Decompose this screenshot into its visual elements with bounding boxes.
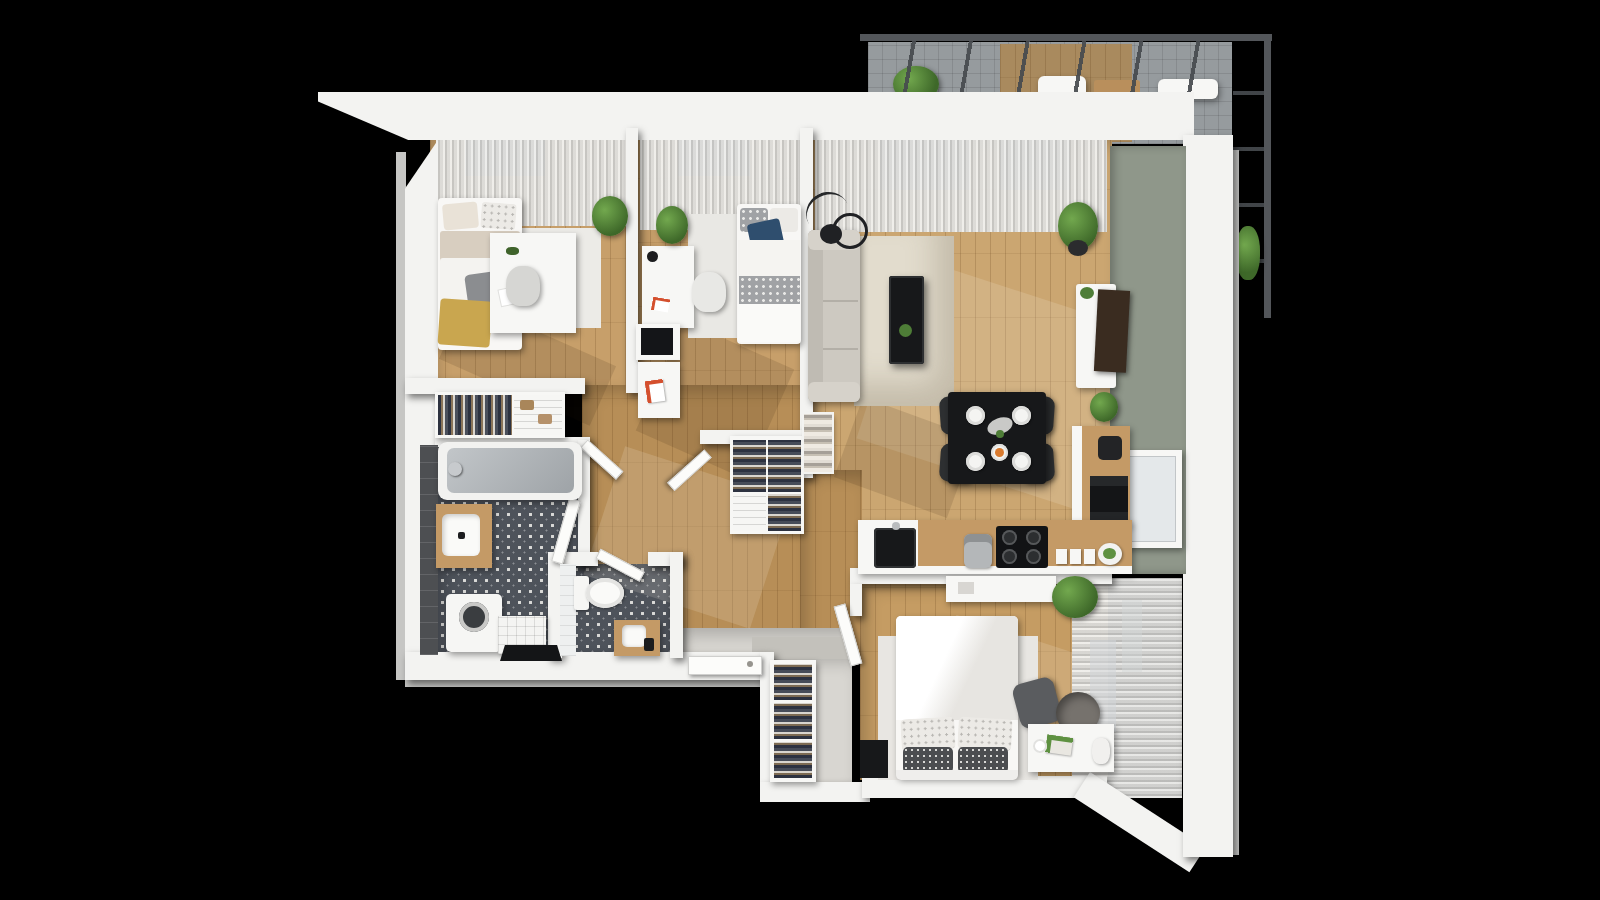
outer-wall-edge — [1232, 150, 1239, 855]
bedroom1-chair — [506, 266, 540, 306]
coat-wardrobe-clothes — [774, 703, 812, 739]
accent-wall-window-pane — [1128, 456, 1176, 542]
kitchen-canister — [1070, 549, 1081, 564]
oven-column — [1090, 476, 1128, 524]
bedroom3-west-wall — [850, 584, 862, 616]
sofa-armrest — [808, 382, 860, 402]
bed-headboard — [896, 770, 1018, 780]
hall-wardrobe-shelves — [733, 494, 766, 531]
desk-paper-red — [651, 297, 670, 313]
desk-book — [1045, 734, 1073, 755]
hall-wardrobe-clothes — [768, 494, 801, 531]
bath-faucet-icon — [448, 462, 462, 476]
bedroom3-plant-icon — [1052, 576, 1098, 618]
toilet-bowl — [586, 578, 624, 608]
balcony-roof-beam — [860, 34, 1272, 41]
bed-foot — [738, 304, 800, 342]
bed-pillow — [442, 202, 479, 231]
vanity-drain-icon — [458, 532, 465, 539]
desk-toy — [506, 247, 519, 255]
living-plant-small-icon — [1090, 392, 1118, 422]
bathtub-basin — [447, 448, 574, 493]
kitchen-canister — [1056, 549, 1067, 564]
closet-basket — [520, 400, 534, 410]
plant-pot-icon — [1068, 240, 1088, 256]
burner-icon — [1026, 549, 1041, 564]
coffee-machine — [1098, 436, 1122, 460]
bed-throw-mustard — [437, 298, 492, 348]
sink-faucet-icon — [892, 522, 900, 530]
closet-basket — [538, 414, 552, 424]
coat-wardrobe-clothes — [774, 742, 812, 778]
dining-table — [948, 392, 1046, 484]
right-wall — [1183, 135, 1233, 857]
desk-plate — [1033, 739, 1047, 753]
wc-accessory — [644, 638, 654, 651]
entrance-door-handle-icon — [747, 661, 753, 667]
vestibule-bottom-wall — [760, 782, 870, 802]
desk-lamp-icon — [647, 251, 658, 262]
place-setting — [1012, 452, 1031, 471]
coffee-table — [889, 276, 924, 364]
coffee-grinder — [964, 534, 992, 568]
kitchen-canister — [1084, 549, 1095, 564]
washer-door-icon — [459, 602, 489, 632]
towel-shelf — [804, 414, 832, 472]
balcony-corner-beam — [1264, 36, 1271, 318]
outer-wall-edge — [405, 679, 767, 687]
coat-wardrobe-clothes — [774, 664, 812, 700]
burner-icon — [1026, 530, 1041, 545]
place-setting — [966, 452, 985, 471]
food-dish-orange — [995, 448, 1004, 457]
sideboard-items — [958, 582, 974, 594]
bedroom2-plant-icon — [656, 206, 688, 244]
place-setting — [966, 406, 985, 425]
bed-pillow — [480, 202, 517, 230]
balcony-plant-icon — [1236, 226, 1260, 280]
burner-icon — [1002, 530, 1017, 545]
hall-wardrobe-clothes — [733, 440, 766, 492]
burner-icon — [1002, 549, 1017, 564]
shelf-red-item — [645, 379, 666, 403]
desk-lamp — [1092, 738, 1110, 764]
fruit-limes-icon — [1103, 548, 1116, 559]
outer-wall-edge — [396, 152, 406, 680]
tv-screen — [1094, 289, 1130, 373]
sofa-cushion-line — [823, 348, 858, 350]
shelf-box-inner — [641, 328, 673, 355]
wc-basin — [622, 625, 646, 647]
floor-plan-render — [0, 0, 1600, 900]
place-setting — [1012, 406, 1031, 425]
sofa-back — [808, 230, 823, 402]
kitchen-sink — [874, 528, 916, 568]
bathroom-niche — [500, 645, 562, 661]
wc-east-wall — [670, 552, 683, 658]
bed-blanket — [739, 276, 800, 304]
table-plant-icon — [996, 430, 1004, 438]
bedroom1-plant-icon — [592, 196, 628, 236]
sideboard-plant-icon — [1080, 287, 1094, 299]
bedroom3-floor-mat — [860, 740, 888, 778]
top-wall — [318, 92, 1194, 140]
bedroom3-window-slit — [1122, 600, 1142, 672]
coffee-table-plant-icon — [899, 324, 912, 337]
hall-wardrobe-clothes — [768, 440, 801, 492]
bedroom2-chair — [692, 272, 726, 312]
closet-clothes — [438, 395, 512, 435]
bed-duvet-fold — [896, 616, 1018, 720]
sofa-cushion-line — [823, 300, 858, 302]
